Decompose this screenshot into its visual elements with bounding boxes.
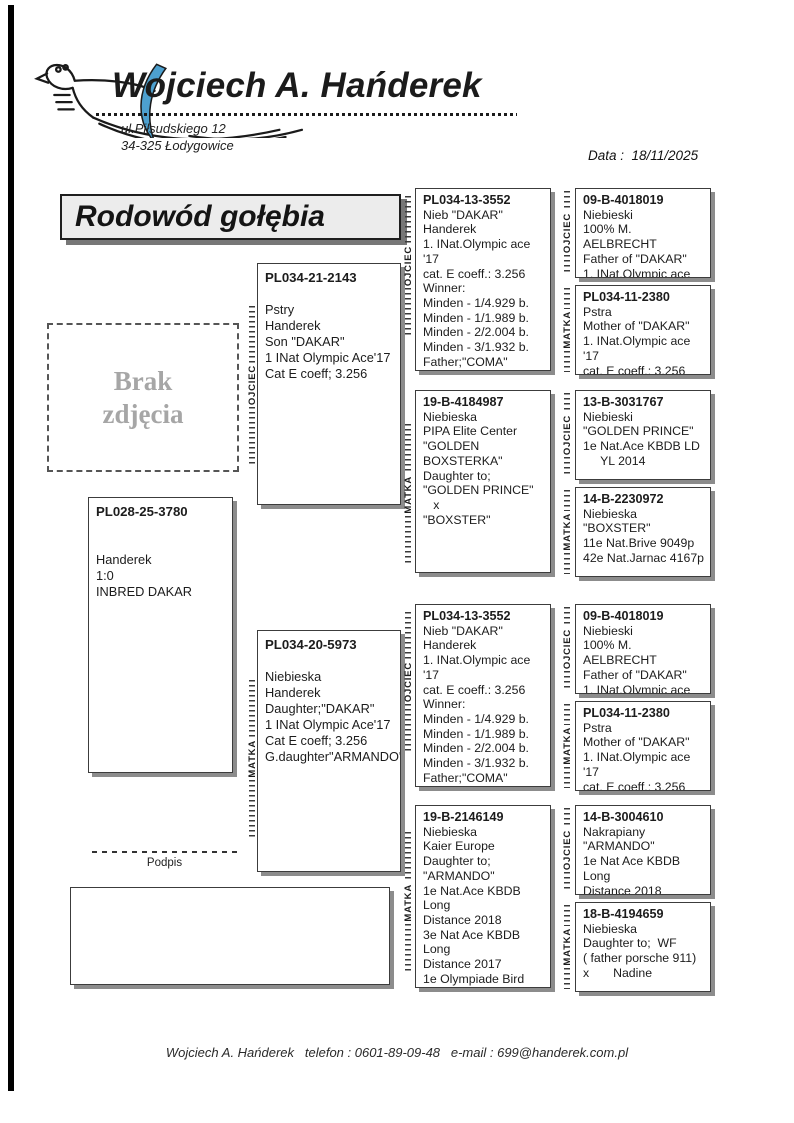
dashed-line xyxy=(249,306,255,363)
pedigree-line xyxy=(265,286,395,302)
pedigree-line xyxy=(96,536,227,552)
pedigree-line: INBRED DAKAR xyxy=(96,584,227,600)
pedigree-line: Cat E coeff; 3.256 xyxy=(265,733,395,749)
pedigree-lines: NiebieskaDaughter to; WF( father porsche… xyxy=(583,922,705,981)
pedigree-line: ( father porsche 911) xyxy=(583,951,705,966)
dashed-line xyxy=(405,288,411,336)
pedigree-lines: Niebieska"BOXSTER"11e Nat.Brive 9049p42e… xyxy=(583,507,705,566)
no-photo-text: Brak zdjęcia xyxy=(78,365,208,430)
pedigree-line: 11e Nat.Brive 9049p xyxy=(583,536,705,551)
pedigree-lines: Niebieski100% M. AELBRECHTFather of "DAK… xyxy=(583,624,705,694)
dashed-line xyxy=(564,671,570,691)
dashed-line xyxy=(564,905,570,926)
pedigree-line: x Nadine xyxy=(583,966,705,981)
matka-label: MATKA xyxy=(561,288,573,372)
ring-number: 09-B-4018019 xyxy=(583,609,705,624)
dashed-line xyxy=(564,808,570,828)
pedigree-line: Minden - 3/1.932 b. xyxy=(423,340,545,355)
pedigree-line: 1. INat.Olympic ace '17 xyxy=(423,653,545,682)
pedigree-line: 1. INat.Olympic ace '17 xyxy=(583,267,705,278)
pedigree-line: Handerek xyxy=(265,318,395,334)
pedigree-line: 1e Nat.Ace KBDB Long xyxy=(423,884,545,913)
pedigree-lines: NiebieskaHanderekDaughter;"DAKAR"1 INat … xyxy=(265,653,395,765)
pedigree-line: Distance 2018 xyxy=(583,884,705,895)
pedigree-lines: NiebieskaKaier EuropeDaughter to;"ARMAND… xyxy=(423,825,545,988)
dashed-line xyxy=(405,832,411,882)
pedigree-line: "BOXSTER" xyxy=(583,521,705,536)
pedigree-line: Cat C Poland 2019 xyxy=(423,986,545,988)
pedigree-line: Nieb "DAKAR" xyxy=(423,624,545,639)
pedigree-box-great-grandparent-5: 09-B-4018019 Niebieski100% M. AELBRECHTF… xyxy=(575,604,711,694)
pedigree-line: Minden - 2/2.004 b. xyxy=(423,741,545,756)
pedigree-line: Minden - 1/1.989 b. xyxy=(423,727,545,742)
pedigree-lines: NiebieskaPIPA Elite Center"GOLDENBOXSTER… xyxy=(423,410,545,528)
pedigree-lines: Nakrapiany"ARMANDO"1e Nat Ace KBDB LongD… xyxy=(583,825,705,895)
pedigree-box-mother: PL034-20-5973 NiebieskaHanderekDaughter;… xyxy=(257,630,401,872)
pedigree-box-grandmother-maternal: 19-B-2146149 NiebieskaKaier EuropeDaught… xyxy=(415,805,551,988)
pedigree-line: Niebieska xyxy=(265,669,395,685)
matka-label: MATKA xyxy=(246,680,258,838)
breeder-address: ul.Piłsudskiego 12 34-325 Łodygowice xyxy=(121,120,234,154)
page-title: Rodowód gołębia xyxy=(75,200,325,234)
pedigree-line: YL 2014 xyxy=(583,454,705,469)
pedigree-line: Pstra xyxy=(583,305,705,320)
ojciec-label: OJCIEC xyxy=(561,607,573,691)
ojciec-label: OJCIEC xyxy=(561,808,573,892)
pedigree-line: Minden - 1/4.929 b. xyxy=(423,296,545,311)
ojciec-label: OJCIEC xyxy=(402,612,414,752)
pedigree-line: Handerek xyxy=(423,638,545,653)
dashed-line xyxy=(564,351,570,372)
pedigree-line: x xyxy=(423,498,545,513)
ring-number: PL034-21-2143 xyxy=(265,270,395,286)
pedigree-line: 42e Nat.Jarnac 4167p xyxy=(583,551,705,566)
ring-number: 19-B-2146149 xyxy=(423,810,545,825)
pedigree-box-grandfather-maternal: PL034-13-3552 Nieb "DAKAR"Handerek1. INa… xyxy=(415,604,551,787)
dashed-line xyxy=(405,924,411,974)
address-line-1: ul.Piłsudskiego 12 xyxy=(121,120,234,137)
matka-label: MATKA xyxy=(561,905,573,989)
ring-number: PL034-20-5973 xyxy=(265,637,395,653)
matka-label: MATKA xyxy=(561,704,573,788)
pedigree-line: Mother of "DAKAR" xyxy=(583,319,705,334)
pedigree-line: Niebieska xyxy=(583,507,705,522)
signature-box xyxy=(70,887,390,985)
dashed-line xyxy=(405,612,411,660)
pedigree-line: Daughter;"DAKAR" xyxy=(265,701,395,717)
pedigree-line: "GOLDEN PRINCE" xyxy=(423,483,545,498)
ring-number: 18-B-4194659 xyxy=(583,907,705,922)
pedigree-line: PIPA Elite Center xyxy=(423,424,545,439)
ojciec-label: OJCIEC xyxy=(402,196,414,336)
pedigree-line: 100% M. AELBRECHT xyxy=(583,222,705,251)
ring-number: 14-B-3004610 xyxy=(583,810,705,825)
dashed-line xyxy=(564,490,570,511)
pedigree-box-great-grandparent-1: 09-B-4018019 Niebieski100% M. AELBRECHTF… xyxy=(575,188,711,278)
pedigree-line: Daughter to; xyxy=(423,469,545,484)
pedigree-line: Winner: xyxy=(423,281,545,296)
pedigree-lines: PstraMother of "DAKAR"1. INat.Olympic ac… xyxy=(583,305,705,375)
pedigree-line: Winner: xyxy=(423,697,545,712)
pedigree-line: Nieb "DAKAR" xyxy=(423,208,545,223)
pedigree-line: Father;"COMA" xyxy=(423,771,545,786)
ojciec-label: OJCIEC xyxy=(561,191,573,275)
pedigree-line: 1e Olympiade Bird xyxy=(423,972,545,987)
dashed-line xyxy=(564,872,570,892)
pedigree-line: "GOLDEN PRINCE" xyxy=(583,424,705,439)
pedigree-line: 1:0 xyxy=(96,568,227,584)
pedigree-box-great-grandparent-2: PL034-11-2380 PstraMother of "DAKAR"1. I… xyxy=(575,285,711,375)
photo-placeholder: Brak zdjęcia xyxy=(47,323,239,472)
ring-number: PL034-13-3552 xyxy=(423,193,545,208)
pedigree-line: Daughter to; xyxy=(423,854,545,869)
pedigree-line: 100% M. AELBRECHT xyxy=(583,638,705,667)
dashed-line xyxy=(564,457,570,477)
pedigree-line: 2 INat Olympic Ace'22 xyxy=(423,369,545,371)
pedigree-line: 1. INat.Olympic ace '17 xyxy=(583,750,705,779)
pedigree-line: Father of "DAKAR" xyxy=(583,668,705,683)
ojciec-label: OJCIEC xyxy=(561,393,573,477)
ring-number: 09-B-4018019 xyxy=(583,193,705,208)
dashed-line xyxy=(564,607,570,627)
dashed-line xyxy=(564,393,570,413)
pedigree-line: Daughter to; WF xyxy=(583,936,705,951)
pedigree-line: 1e Nat Ace KBDB Long xyxy=(583,854,705,883)
pedigree-lines: PstryHanderekSon "DAKAR"1 INat Olympic A… xyxy=(265,286,395,382)
pedigree-line: Niebieska xyxy=(423,410,545,425)
ring-number: PL034-13-3552 xyxy=(423,609,545,624)
pedigree-line: Pstry xyxy=(265,302,395,318)
dashed-line xyxy=(564,767,570,788)
pedigree-line: Father of "DAKAR" xyxy=(583,252,705,267)
pedigree-line: Handerek xyxy=(423,222,545,237)
dashed-line xyxy=(564,255,570,275)
pedigree-line: "ARMANDO" xyxy=(423,869,545,884)
pedigree-line: cat. E coeff.: 3.256 xyxy=(583,780,705,791)
ojciec-label: OJCIEC xyxy=(246,306,258,464)
dashed-line xyxy=(405,704,411,752)
dashed-line xyxy=(564,968,570,989)
pedigree-lines: Nieb "DAKAR"Handerek1. INat.Olympic ace … xyxy=(423,624,545,787)
pedigree-lines: PstraMother of "DAKAR"1. INat.Olympic ac… xyxy=(583,721,705,791)
pedigree-line: Minden - 1/4.929 b. xyxy=(423,712,545,727)
pedigree-line xyxy=(265,653,395,669)
footer-contact-text: Wojciech A. Hańderek telefon : 0601-89-0… xyxy=(0,1045,794,1060)
pedigree-line: Handerek xyxy=(96,552,227,568)
dashed-line xyxy=(564,553,570,574)
pedigree-line: G.daughter"ARMANDO" xyxy=(265,749,395,765)
pedigree-document-page: Wojciech A. Hańderek ul.Piłsudskiego 12 … xyxy=(0,0,794,1123)
pedigree-line: 1. INat.Olympic ace '17 xyxy=(583,334,705,363)
pedigree-line: "GOLDEN xyxy=(423,439,545,454)
dashed-line xyxy=(405,516,411,566)
ring-number: PL034-11-2380 xyxy=(583,706,705,721)
pedigree-box-father: PL034-21-2143 PstryHanderekSon "DAKAR"1 … xyxy=(257,263,401,505)
pedigree-line: Niebieski xyxy=(583,410,705,425)
left-margin-bar xyxy=(8,5,14,1091)
pedigree-box-great-grandparent-6: PL034-11-2380 PstraMother of "DAKAR"1. I… xyxy=(575,701,711,791)
ring-number: 19-B-4184987 xyxy=(423,395,545,410)
dashed-line xyxy=(249,680,255,738)
pedigree-line: cat. E coeff.: 3.256 xyxy=(423,267,545,282)
pedigree-lines: Niebieski"GOLDEN PRINCE"1e Nat.Ace KBDB … xyxy=(583,410,705,469)
pedigree-line: Minden - 2/2.004 b. xyxy=(423,325,545,340)
dashed-line xyxy=(405,424,411,474)
pedigree-line: Distance 2017 xyxy=(423,957,545,972)
pedigree-box-grandmother-paternal: 19-B-4184987 NiebieskaPIPA Elite Center"… xyxy=(415,390,551,573)
pedigree-box-great-grandparent-4: 14-B-2230972 Niebieska"BOXSTER"11e Nat.B… xyxy=(575,487,711,577)
pedigree-lines: Handerek1:0INBRED DAKAR xyxy=(96,520,227,600)
pedigree-line: Niebieska xyxy=(583,922,705,937)
dashed-line xyxy=(564,288,570,309)
pedigree-line: Mother of "DAKAR" xyxy=(583,735,705,750)
pedigree-line: "BOXSTER" xyxy=(423,513,545,528)
pedigree-box-subject: PL028-25-3780 Handerek1:0INBRED DAKAR xyxy=(88,497,233,773)
signature-label: Podpis xyxy=(92,857,237,869)
pedigree-line: 1 INat Olympic Ace'17 xyxy=(265,350,395,366)
pedigree-line: Distance 2018 xyxy=(423,913,545,928)
pedigree-line: 1. INat.Olympic ace '17 xyxy=(583,683,705,694)
pedigree-line: 1e Nat.Ace KBDB LD xyxy=(583,439,705,454)
pedigree-line xyxy=(96,520,227,536)
pedigree-line: Pstra xyxy=(583,721,705,736)
matka-label: MATKA xyxy=(402,832,414,974)
breeder-name: Wojciech A. Hańderek xyxy=(112,66,482,106)
pedigree-line: Niebieski xyxy=(583,624,705,639)
header-dashed-underline xyxy=(96,113,517,116)
address-line-2: 34-325 Łodygowice xyxy=(121,137,234,154)
signature-dashed-line xyxy=(92,851,237,853)
pedigree-line: Minden - 1/1.989 b. xyxy=(423,311,545,326)
ring-number: 14-B-2230972 xyxy=(583,492,705,507)
pedigree-line: Cat E coeff; 3.256 xyxy=(265,366,395,382)
pedigree-line: Handerek xyxy=(265,685,395,701)
document-title-box: Rodowód gołębia xyxy=(60,194,401,240)
pedigree-box-grandfather-paternal: PL034-13-3552 Nieb "DAKAR"Handerek1. INa… xyxy=(415,188,551,371)
pedigree-lines: Niebieski100% M. AELBRECHTFather of "DAK… xyxy=(583,208,705,278)
pedigree-line: BOXSTERKA" xyxy=(423,454,545,469)
pedigree-line: Son "DAKAR" xyxy=(265,334,395,350)
matka-label: MATKA xyxy=(561,490,573,574)
pedigree-line: 2 INat Olympic Ace'22 xyxy=(423,785,545,787)
pedigree-line: cat. E coeff.: 3.256 xyxy=(423,683,545,698)
dashed-line xyxy=(564,704,570,725)
pedigree-line: 1 INat Olympic Ace'17 xyxy=(265,717,395,733)
pedigree-line: Kaier Europe xyxy=(423,839,545,854)
pedigree-box-great-grandparent-3: 13-B-3031767 Niebieski"GOLDEN PRINCE"1e … xyxy=(575,390,711,480)
pedigree-line: "ARMANDO" xyxy=(583,839,705,854)
pedigree-line: Niebieska xyxy=(423,825,545,840)
dashed-line xyxy=(405,196,411,244)
pedigree-line: Minden - 3/1.932 b. xyxy=(423,756,545,771)
matka-label: MATKA xyxy=(402,424,414,566)
ring-number: PL034-11-2380 xyxy=(583,290,705,305)
pedigree-lines: Nieb "DAKAR"Handerek1. INat.Olympic ace … xyxy=(423,208,545,371)
dashed-line xyxy=(249,407,255,464)
pedigree-line: cat. E coeff.: 3.256 xyxy=(583,364,705,375)
pedigree-line: Nakrapiany xyxy=(583,825,705,840)
pedigree-line: 3e Nat Ace KBDB Long xyxy=(423,928,545,957)
pedigree-line: Father;"COMA" xyxy=(423,355,545,370)
pedigree-line: 1. INat.Olympic ace '17 xyxy=(423,237,545,266)
pedigree-box-great-grandparent-8: 18-B-4194659 NiebieskaDaughter to; WF( f… xyxy=(575,902,711,992)
ring-number: 13-B-3031767 xyxy=(583,395,705,410)
pedigree-box-great-grandparent-7: 14-B-3004610 Nakrapiany"ARMANDO"1e Nat A… xyxy=(575,805,711,895)
date-text: Data : 18/11/2025 xyxy=(588,148,698,163)
ring-number: PL028-25-3780 xyxy=(96,504,227,520)
dashed-line xyxy=(564,191,570,211)
dashed-line xyxy=(249,780,255,838)
pedigree-line: Niebieski xyxy=(583,208,705,223)
